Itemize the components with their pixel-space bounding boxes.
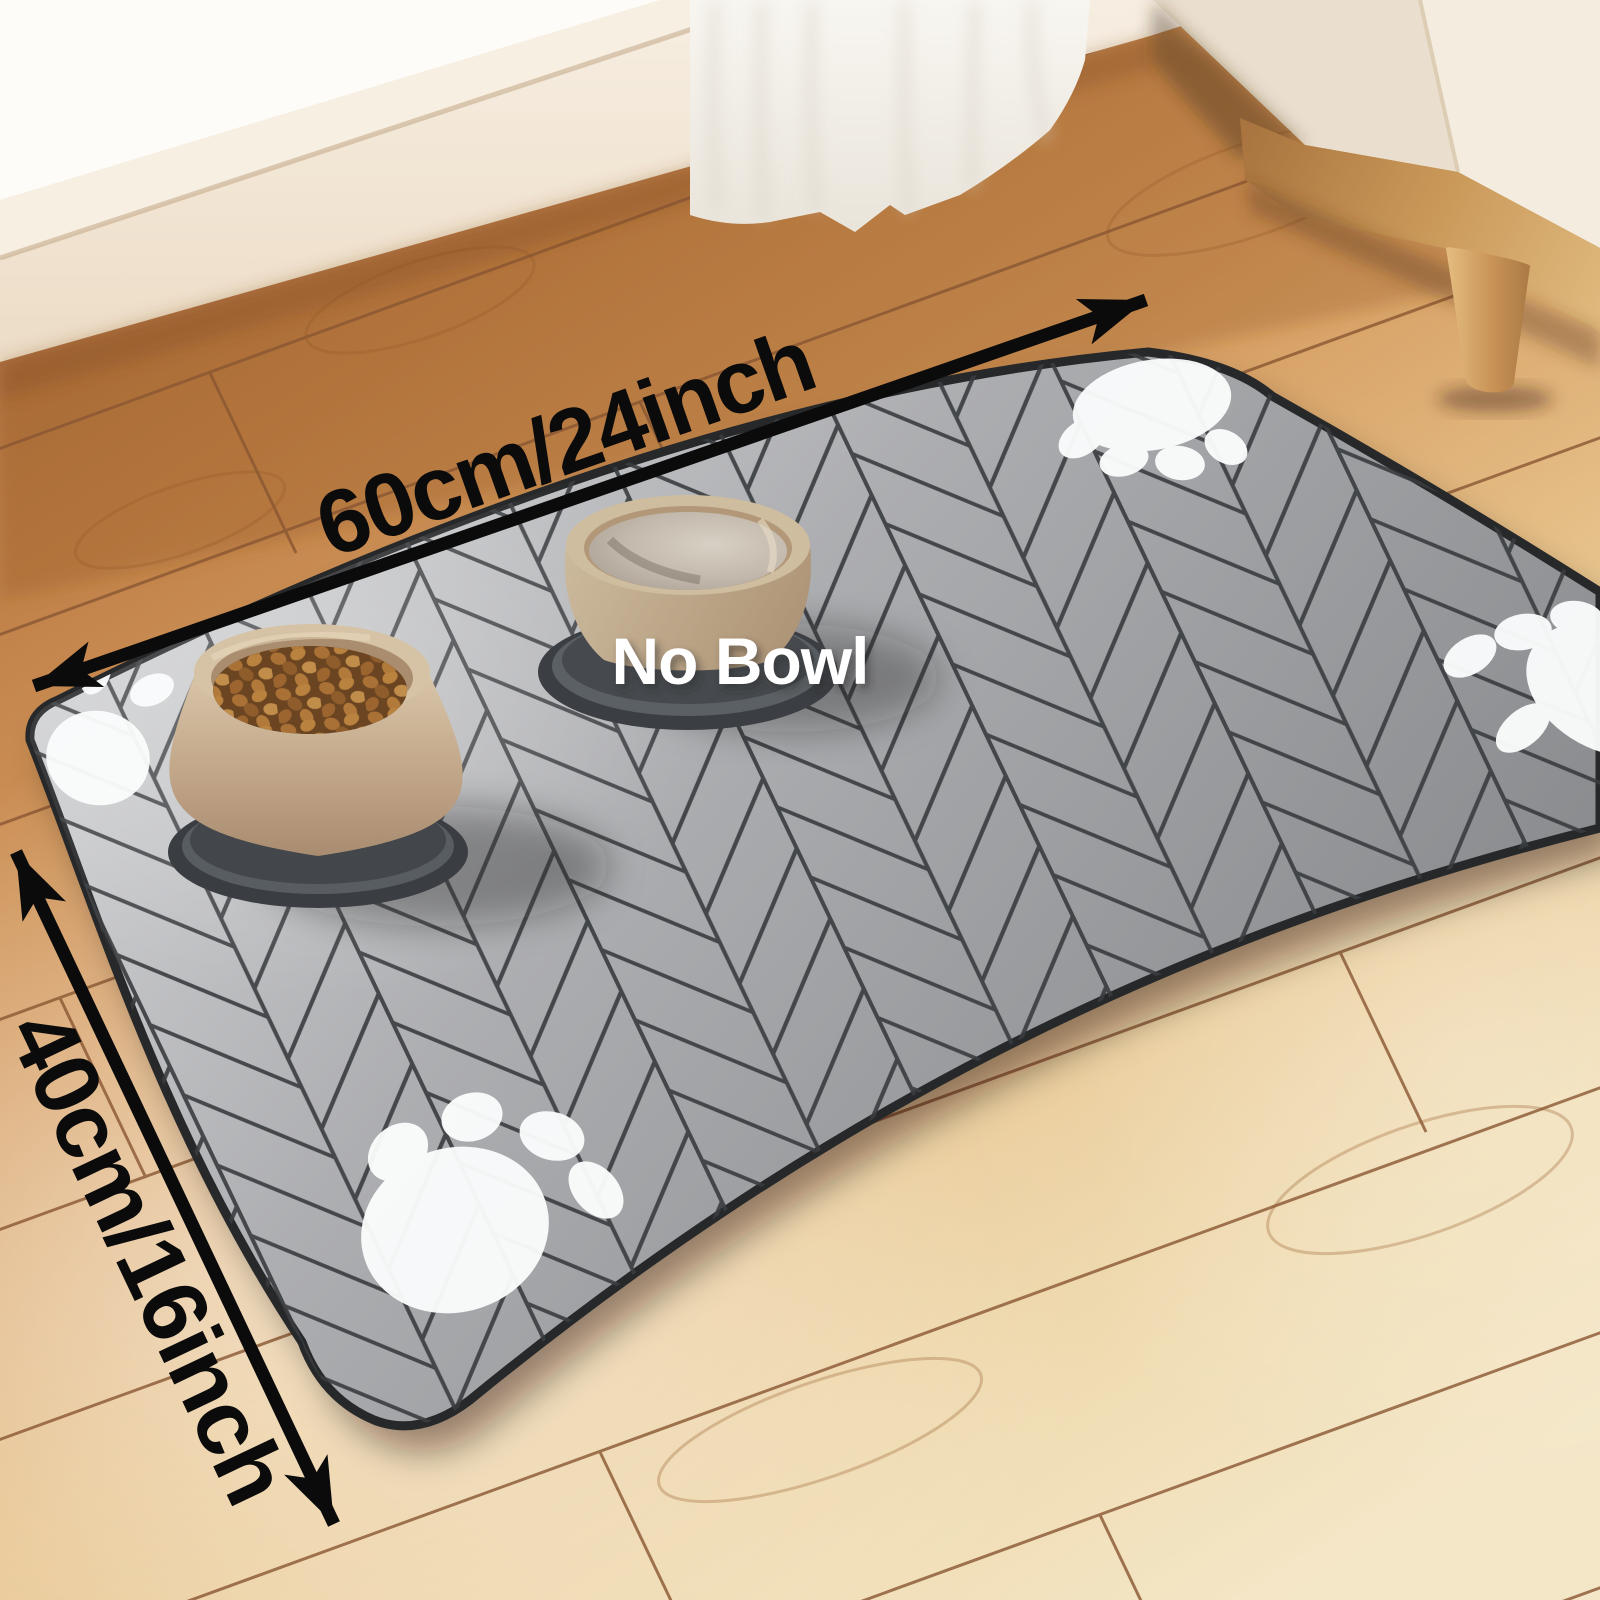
kibble-food (213, 646, 407, 734)
no-bowl-annotation: No Bowl No Bowl (612, 624, 873, 703)
product-photo-pet-feeding-mat: 60cm/24inch 40cm/16inch No Bowl No Bowl (0, 0, 1600, 1600)
no-bowl-label: No Bowl (612, 624, 869, 698)
